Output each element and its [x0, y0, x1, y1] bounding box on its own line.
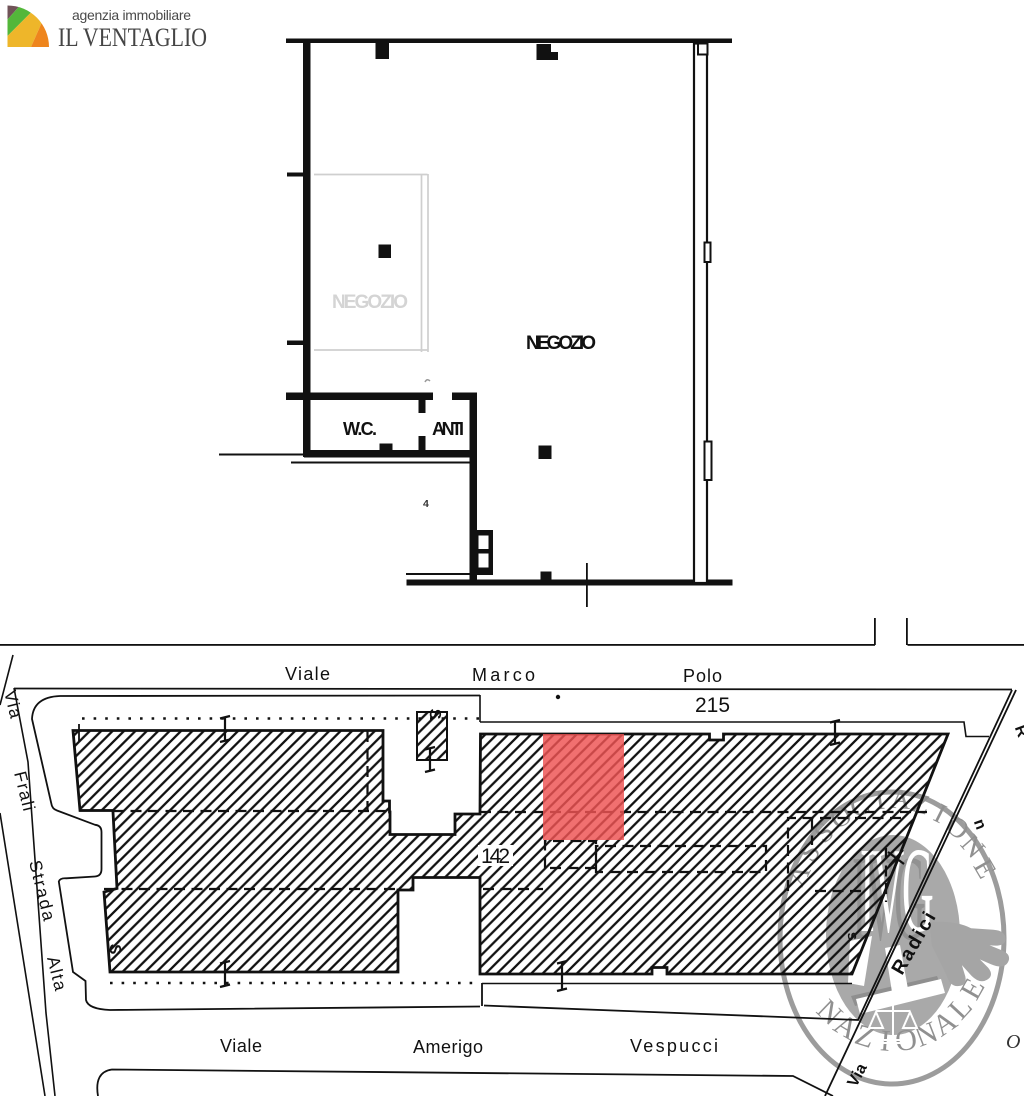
svg-text:R: R	[1011, 723, 1024, 740]
svg-text:S: S	[105, 943, 123, 955]
svg-text:Viale: Viale	[285, 664, 330, 684]
svg-text:Via: Via	[845, 1061, 871, 1090]
svg-text:215: 215	[695, 694, 730, 717]
svg-text:O: O	[1006, 1031, 1020, 1053]
svg-text:142: 142	[481, 845, 510, 868]
svg-text:Vespucci: Vespucci	[630, 1036, 718, 1056]
svg-text:Strada: Strada	[25, 858, 60, 925]
svg-text:NEGOZIO: NEGOZIO	[332, 292, 408, 313]
svg-text:Via: Via	[0, 688, 27, 721]
svg-text:NEGOZIO: NEGOZIO	[526, 333, 596, 354]
svg-text:I: I	[879, 1024, 892, 1058]
svg-text:Frali: Frali	[10, 769, 39, 814]
svg-text:W.C.: W.C.	[343, 419, 377, 439]
svg-text:Alta: Alta	[43, 954, 71, 994]
svg-text:n: n	[970, 817, 989, 832]
svg-text:agenzia immobiliare: agenzia immobiliare	[72, 7, 191, 23]
svg-text:ANTI: ANTI	[432, 419, 464, 439]
svg-text:4: 4	[423, 498, 429, 510]
svg-text:IL VENTAGLIO: IL VENTAGLIO	[58, 22, 207, 52]
svg-text:Polo: Polo	[683, 666, 722, 686]
svg-text:Marco: Marco	[472, 665, 535, 685]
svg-text:Amerigo: Amerigo	[413, 1037, 483, 1057]
svg-text:Viale: Viale	[220, 1036, 262, 1056]
svg-text:S: S	[426, 709, 443, 721]
